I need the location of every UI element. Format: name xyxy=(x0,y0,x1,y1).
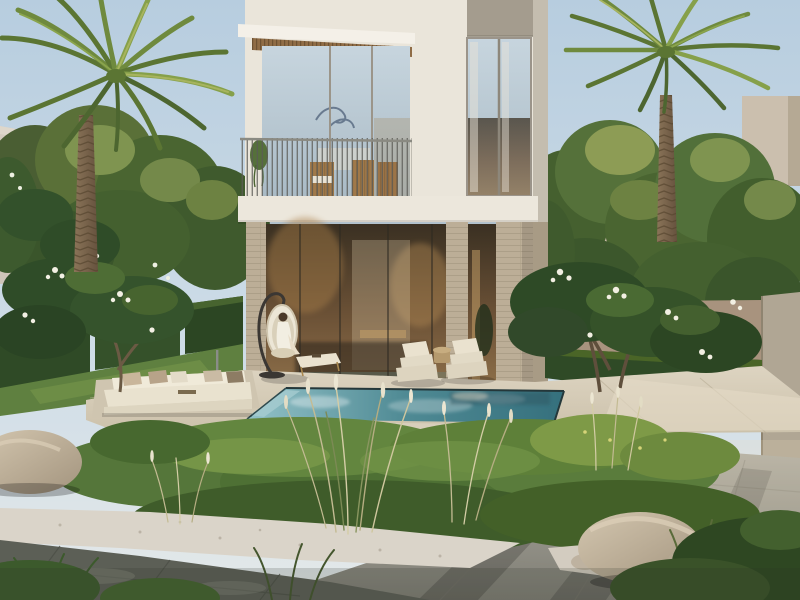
tree-reflection xyxy=(267,217,343,313)
woman-hair xyxy=(279,313,288,322)
facade-right-shade xyxy=(533,0,548,222)
curtain-streak xyxy=(502,42,509,192)
neighbor-box-2-shade xyxy=(788,96,800,186)
drinks-table xyxy=(433,347,451,363)
slab-shadow xyxy=(238,220,538,224)
floor-slab-band xyxy=(238,196,538,222)
facade-panel-taupe xyxy=(467,0,533,36)
balcony-railing xyxy=(240,138,412,197)
scene-canvas: Architectural rendering of a modern two-… xyxy=(0,0,800,600)
crown-core xyxy=(106,69,126,83)
table-item xyxy=(312,354,321,358)
crown-core xyxy=(657,46,675,58)
foreground-shade xyxy=(0,568,800,600)
balcony xyxy=(240,46,412,197)
upper-window-right xyxy=(467,38,531,196)
villa-rendering: Architectural rendering of a modern two-… xyxy=(0,0,800,600)
sofa-shadow xyxy=(102,413,252,417)
basket-cushion xyxy=(271,348,295,358)
ground-floor xyxy=(246,217,548,392)
curtain-streak xyxy=(470,42,478,192)
sofa-tray xyxy=(178,390,196,394)
interior-table-hint xyxy=(360,330,406,338)
